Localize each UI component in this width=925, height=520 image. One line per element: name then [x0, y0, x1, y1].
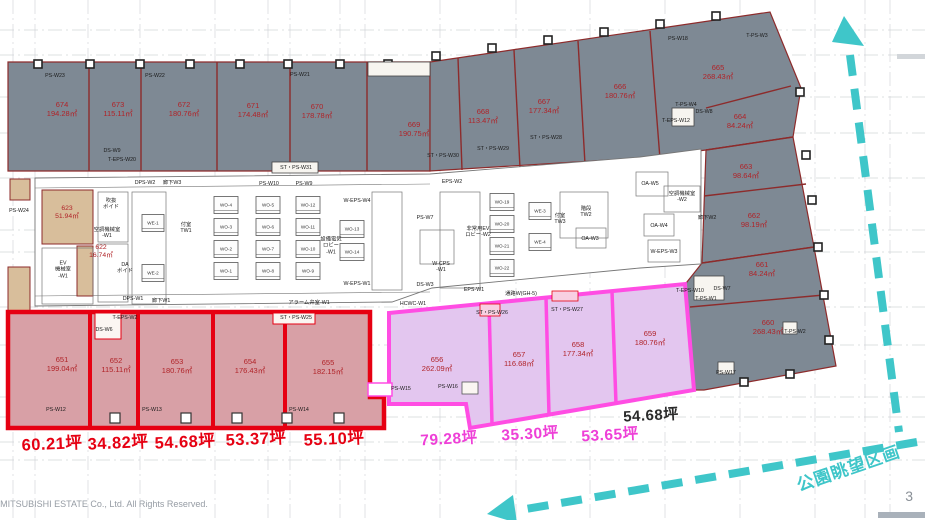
floorplan-slide: 674 194.28㎡673 115.11㎡672 180.76㎡671 174…: [0, 0, 925, 520]
elevator-shaft-WO-3: [214, 219, 238, 236]
elevator-shaft-WE-3: [529, 203, 551, 220]
elevator-shaft-WO-6: [256, 219, 280, 236]
copyright-text: ight © MITSUBISHI ESTATE Co., Ltd. All R…: [0, 499, 208, 509]
magenta-lease-zone: [368, 284, 694, 428]
elevator-shaft-WE-4: [529, 234, 551, 251]
top-edge-bar: [897, 54, 925, 59]
elevator-shaft-WO-5: [256, 197, 280, 214]
elevator-shaft-WE-2: [142, 265, 164, 282]
elevator-shaft-WO-22: [490, 260, 514, 277]
elevator-shaft-WO-21: [490, 238, 514, 255]
building-core: [8, 149, 701, 311]
floorplan-drawing: [0, 0, 925, 520]
elevator-shaft-WO-8: [256, 263, 280, 280]
elevator-shaft-WO-9: [296, 263, 320, 280]
elevator-shaft-WO-4: [214, 197, 238, 214]
elevator-shaft-WO-14: [340, 244, 364, 261]
elevator-shaft-WO-12: [296, 197, 320, 214]
elevator-shaft-WE-1: [142, 215, 164, 232]
elevator-shaft-WO-11: [296, 219, 320, 236]
elevator-shaft-WO-13: [340, 221, 364, 238]
page-number: 3: [905, 488, 913, 504]
elevator-shaft-WO-2: [214, 241, 238, 258]
elevator-shaft-WO-1: [214, 263, 238, 280]
corner-bar: [878, 512, 925, 518]
elevator-shaft-WO-7: [256, 241, 280, 258]
red-lease-zone: [8, 312, 384, 428]
elevator-shaft-WO-10: [296, 241, 320, 258]
elevator-shaft-WO-20: [490, 216, 514, 233]
elevator-shaft-WO-19: [490, 194, 514, 211]
